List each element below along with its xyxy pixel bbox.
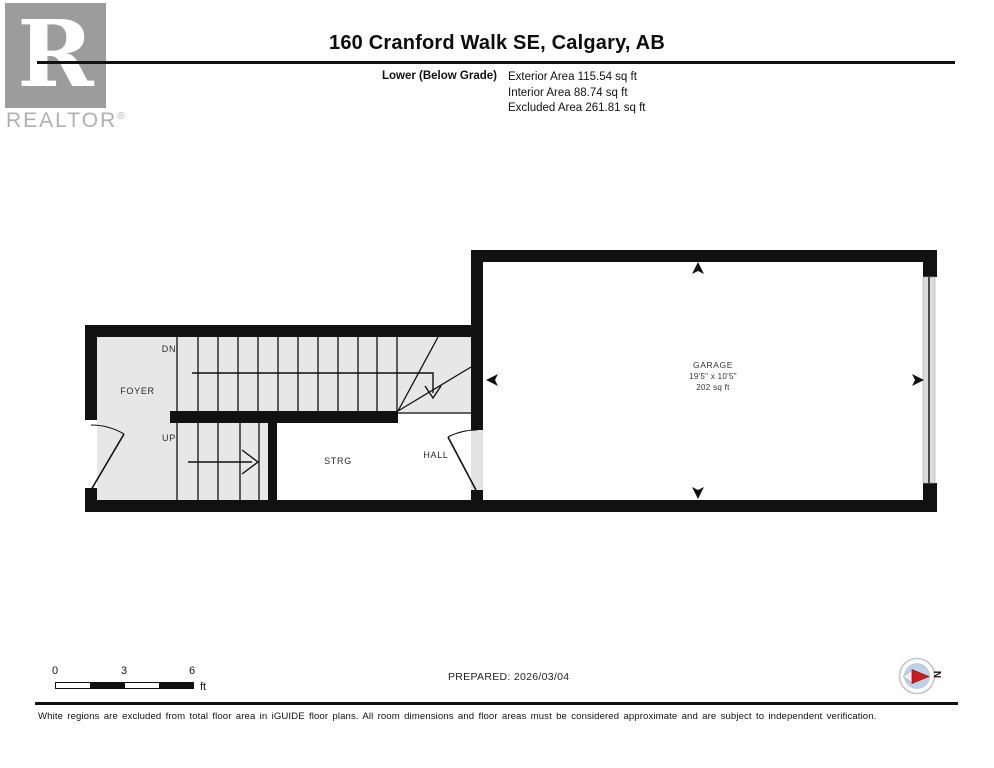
label-storage: STRG	[313, 456, 363, 466]
hall-door-opening	[471, 430, 483, 490]
prepared-date: PREPARED: 2026/03/04	[448, 671, 569, 683]
scale-tick-3: 3	[114, 665, 134, 677]
garage-dimensions: 19'5" x 10'5"	[643, 371, 783, 382]
garage-door	[923, 277, 935, 483]
floor-plan-drawing	[0, 0, 994, 768]
label-foyer: FOYER	[110, 386, 165, 396]
scale-tick-0: 0	[45, 665, 65, 677]
scale-bar-segments	[55, 682, 194, 689]
label-stairs-down: DN	[157, 344, 181, 354]
floor-plan-page: R REALTOR® 160 Cranford Walk SE, Calgary…	[0, 0, 994, 768]
label-garage: GARAGE 19'5" x 10'5" 202 sq ft	[643, 360, 783, 393]
scale-tick-6: 6	[182, 665, 202, 677]
label-stairs-up: UP	[157, 433, 181, 443]
storage-hall-floor-region	[277, 423, 473, 500]
garage-area: 202 sq ft	[643, 382, 783, 393]
header-divider-line	[37, 61, 955, 64]
garage-name: GARAGE	[643, 360, 783, 371]
scale-unit: ft	[200, 681, 206, 693]
label-hall: HALL	[411, 450, 461, 460]
hall-floor-region	[398, 414, 471, 424]
compass-north-label: N	[931, 671, 942, 678]
